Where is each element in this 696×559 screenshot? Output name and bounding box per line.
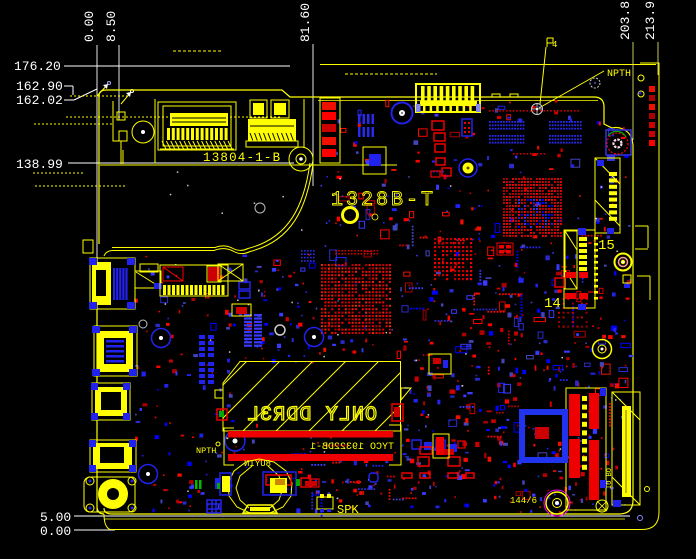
svg-text:0.00: 0.00 <box>40 524 71 539</box>
svg-text:NPTH: NPTH <box>196 446 216 456</box>
svg-text:144/6: 144/6 <box>510 496 537 506</box>
svg-text:TYCO 19322DB-1: TYCO 19322DB-1 <box>310 442 394 453</box>
svg-text:138.99: 138.99 <box>16 157 63 172</box>
svg-text:203.8: 203.8 <box>618 1 633 40</box>
svg-text:81.60: 81.60 <box>298 3 313 42</box>
svg-text:8.50: 8.50 <box>104 11 119 42</box>
svg-text:213.9: 213.9 <box>643 1 658 40</box>
svg-text:SPK: SPK <box>337 503 359 517</box>
svg-text:162.02: 162.02 <box>16 93 63 108</box>
svg-text:0.00: 0.00 <box>82 11 97 42</box>
svg-text:NPTH: NPTH <box>607 69 631 80</box>
svg-text:ONLY DDR3L: ONLY DDR3L <box>246 404 377 427</box>
svg-text:13804-1-B: 13804-1-B <box>203 151 281 165</box>
svg-text:4: 4 <box>552 40 557 50</box>
svg-text:8UYIN: 8UYIN <box>244 459 271 469</box>
svg-text:IO BO: IO BO <box>606 468 614 489</box>
svg-text:15: 15 <box>598 238 615 254</box>
svg-text:1328B-T: 1328B-T <box>331 189 436 212</box>
svg-text:162.90: 162.90 <box>16 79 63 94</box>
svg-text:176.20: 176.20 <box>14 59 61 74</box>
svg-text:5.00: 5.00 <box>40 510 71 525</box>
svg-text:14: 14 <box>544 296 561 312</box>
